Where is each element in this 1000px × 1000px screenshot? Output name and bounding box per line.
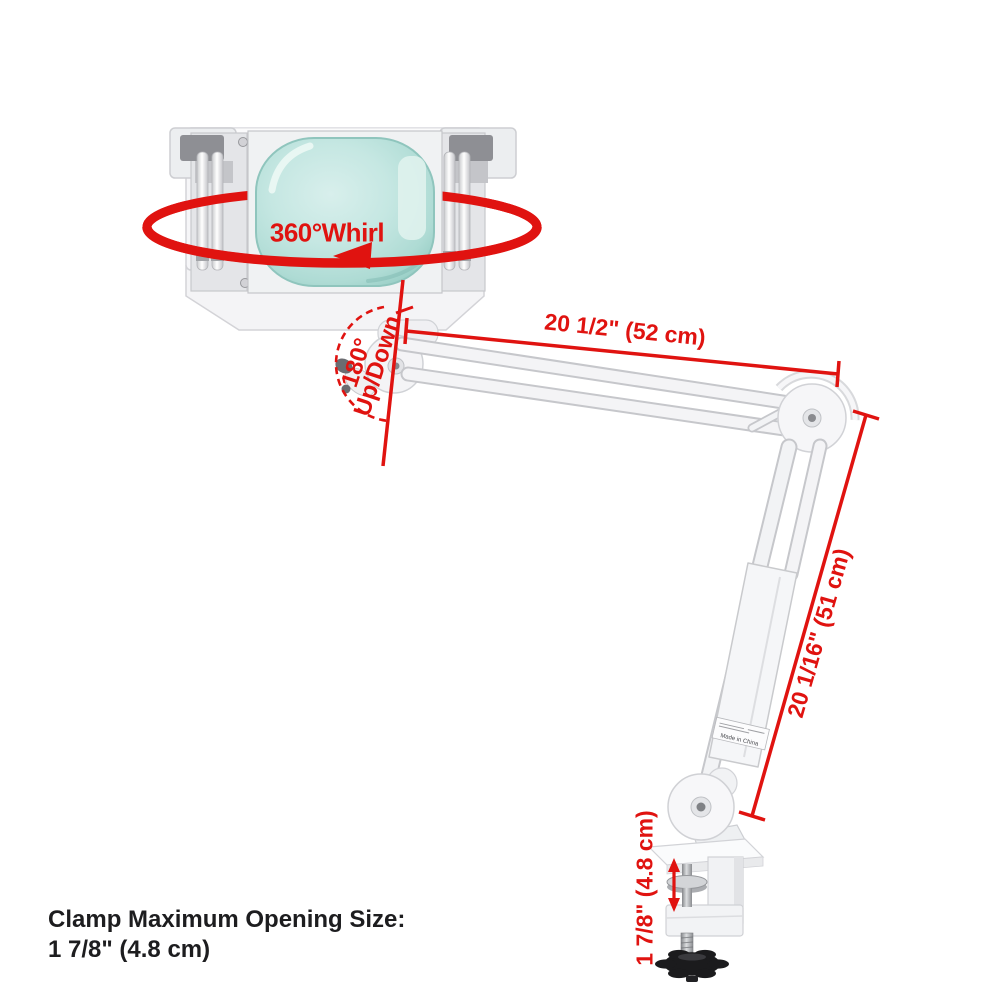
- clamp-bottom-lip: [666, 905, 743, 936]
- clamp-note-line1: Clamp Maximum Opening Size:: [48, 906, 405, 934]
- upper-arm: [402, 344, 798, 431]
- product-annotation-image: Made in China: [0, 0, 1000, 1000]
- magnifier-lamp-artwork: Made in China: [0, 0, 1000, 1000]
- lower-arm: Made in China: [706, 446, 820, 788]
- magnifier-lens-assembly: [248, 131, 442, 293]
- screw: [239, 138, 248, 147]
- table-clamp: [649, 839, 763, 982]
- clamp-knob: [655, 950, 729, 982]
- clamp-opening-label: 1 7/8" (4.8 cm): [632, 810, 659, 965]
- tube-cap-right: [449, 135, 493, 161]
- whirl-label: 360°Whirl: [270, 218, 384, 249]
- clamp-note-line2: 1 7/8" (4.8 cm): [48, 936, 210, 964]
